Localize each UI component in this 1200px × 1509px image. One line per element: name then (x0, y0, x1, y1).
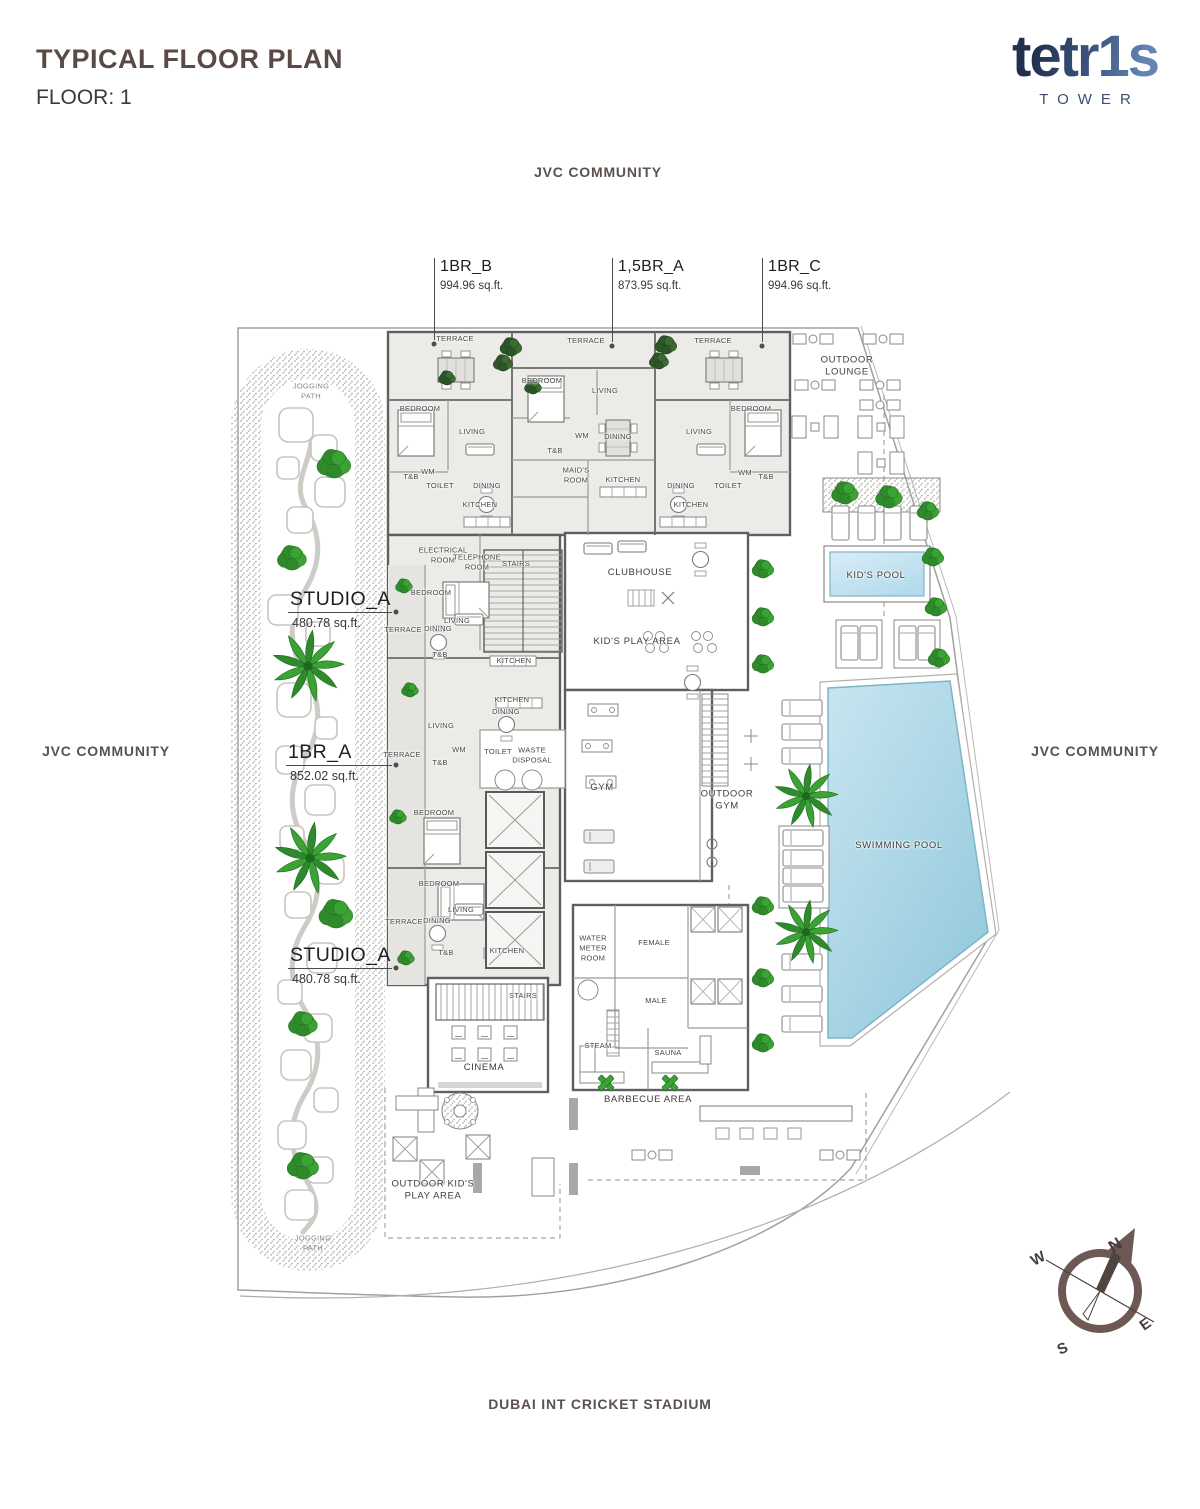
room-label-kid-s-pool: KID'S POOL (846, 570, 905, 582)
room-label-barbecue-area: BARBECUE AREA (604, 1094, 692, 1106)
room-label-t-b: T&B (438, 948, 453, 958)
room-label-t-b: T&B (432, 650, 447, 660)
floor-label: FLOOR: 1 (36, 86, 132, 110)
unit-leader-line (434, 258, 435, 340)
room-label-maid-s-room: MAID'S ROOM (563, 465, 590, 485)
room-label-dining: DINING (424, 624, 452, 634)
room-label-wm: WM (452, 745, 466, 755)
room-label-bedroom: BEDROOM (731, 404, 772, 414)
room-label-male: MALE (645, 996, 666, 1006)
room-label-t-b: T&B (547, 446, 562, 456)
unit-leader-line (288, 612, 392, 613)
room-label-swimming-pool: SWIMMING POOL (855, 840, 943, 852)
room-label-living: LIVING (448, 905, 474, 915)
unit-label-studio_a: STUDIO_A (290, 588, 391, 611)
room-label-jogging-path: JOGGING PATH (295, 1233, 331, 1253)
unit-label-1,5br_a: 1,5BR_A873.95 sq.ft. (618, 258, 684, 292)
room-label-toilet: TOILET (484, 747, 512, 757)
room-label-terrace: TERRACE (383, 750, 421, 760)
unit-area: 852.02 sq.ft. (290, 769, 359, 783)
surrounding-label-right: JVC COMMUNITY (1031, 743, 1159, 759)
unit-name: 1BR_C (768, 258, 831, 276)
room-label-t-b: T&B (758, 472, 773, 482)
room-label-toilet: TOILET (426, 481, 454, 491)
unit-leader-dot (394, 966, 399, 971)
room-label-kitchen: KITCHEN (495, 695, 530, 705)
room-label-terrace: TERRACE (384, 625, 422, 635)
room-label-bedroom: BEDROOM (522, 376, 563, 386)
room-label-jogging-path: JOGGING PATH (293, 381, 329, 401)
room-label-dining: DINING (492, 707, 520, 717)
unit-label-1br_b: 1BR_B994.96 sq.ft. (440, 258, 503, 292)
room-label-kid-s-play-area: KID'S PLAY AREA (593, 636, 680, 648)
unit-area: 480.78 sq.ft. (292, 972, 361, 986)
room-label-t-b: T&B (403, 472, 418, 482)
room-label-toilet: TOILET (714, 481, 742, 491)
room-label-dining: DINING (423, 916, 451, 926)
room-label-kitchen: KITCHEN (490, 946, 525, 956)
room-label-kitchen: KITCHEN (497, 656, 532, 666)
floor-plan-page: N W E S TYPICAL FLOOR PLAN FLOOR: 1 tetr… (0, 0, 1200, 1509)
room-label-dining: DINING (604, 432, 632, 442)
brand-name: tetr1s (1012, 28, 1158, 86)
unit-label-1br_c: 1BR_C994.96 sq.ft. (768, 258, 831, 292)
room-label-terrace: TERRACE (385, 917, 423, 927)
room-label-water-meter-room: WATER METER ROOM (579, 933, 607, 962)
room-label-wm: WM (738, 468, 752, 478)
room-label-sauna: SAUNA (654, 1048, 681, 1058)
unit-leader-line (288, 968, 392, 969)
room-label-outdoor-kid-s-play-area: OUTDOOR KID'S PLAY AREA (392, 1179, 475, 1204)
room-label-terrace: TERRACE (436, 334, 474, 344)
room-label-living: LIVING (592, 386, 618, 396)
brand-logo: tetr1s TOWER (1012, 28, 1158, 108)
room-label-outdoor-lounge: OUTDOOR LOUNGE (821, 355, 874, 380)
unit-name: 1BR_B (440, 258, 503, 276)
unit-leader-dot (760, 344, 765, 349)
surrounding-label-top: JVC COMMUNITY (534, 164, 662, 180)
unit-label-studio_a: STUDIO_A (290, 944, 391, 967)
unit-area: 873.95 sq.ft. (618, 280, 684, 292)
room-label-telephone-room: TELEPHONE ROOM (453, 552, 501, 572)
room-label-stairs: STAIRS (509, 991, 537, 1001)
unit-leader-line (612, 258, 613, 342)
surrounding-label-left: JVC COMMUNITY (42, 743, 170, 759)
room-label-kitchen: KITCHEN (606, 475, 641, 485)
room-label-living: LIVING (686, 427, 712, 437)
unit-leader-dot (394, 763, 399, 768)
room-label-kitchen: KITCHEN (674, 500, 709, 510)
room-label-dining: DINING (667, 481, 695, 491)
room-label-steam: STEAM (584, 1041, 611, 1051)
room-label-dining: DINING (473, 481, 501, 491)
surrounding-label-bottom: DUBAI INT CRICKET STADIUM (488, 1396, 712, 1412)
room-label-gym: GYM (590, 782, 613, 794)
unit-area: 994.96 sq.ft. (440, 280, 503, 292)
room-label-outdoor-gym: OUTDOOR GYM (701, 789, 754, 814)
room-label-stairs: STAIRS (502, 559, 530, 569)
room-label-cinema: CINEMA (464, 1062, 505, 1074)
room-label-clubhouse: CLUBHOUSE (608, 567, 673, 579)
room-label-terrace: TERRACE (694, 336, 732, 346)
unit-leader-dot (394, 610, 399, 615)
room-label-bedroom: BEDROOM (419, 879, 460, 889)
unit-leader-dot (610, 344, 615, 349)
room-label-living: LIVING (459, 427, 485, 437)
unit-leader-line (286, 765, 392, 766)
brand-subtitle: TOWER (1012, 91, 1158, 108)
room-label-female: FEMALE (638, 938, 670, 948)
room-label-terrace: TERRACE (567, 336, 605, 346)
unit-area: 480.78 sq.ft. (292, 616, 361, 630)
unit-label-1br_a: 1BR_A (288, 741, 352, 764)
room-label-living: LIVING (428, 721, 454, 731)
unit-leader-dot (432, 342, 437, 347)
room-label-bedroom: BEDROOM (400, 404, 441, 414)
page-title: TYPICAL FLOOR PLAN (36, 44, 343, 75)
room-label-wm: WM (421, 467, 435, 477)
room-label-waste-disposal: WASTE DISPOSAL (512, 745, 552, 765)
labels-layer: TYPICAL FLOOR PLAN FLOOR: 1 tetr1s TOWER… (0, 0, 1200, 1509)
room-label-kitchen: KITCHEN (463, 500, 498, 510)
unit-area: 994.96 sq.ft. (768, 280, 831, 292)
unit-leader-line (762, 258, 763, 342)
room-label-t-b: T&B (432, 758, 447, 768)
room-label-bedroom: BEDROOM (414, 808, 455, 818)
room-label-wm: WM (575, 431, 589, 441)
unit-name: 1,5BR_A (618, 258, 684, 276)
room-label-bedroom: BEDROOM (411, 588, 452, 598)
